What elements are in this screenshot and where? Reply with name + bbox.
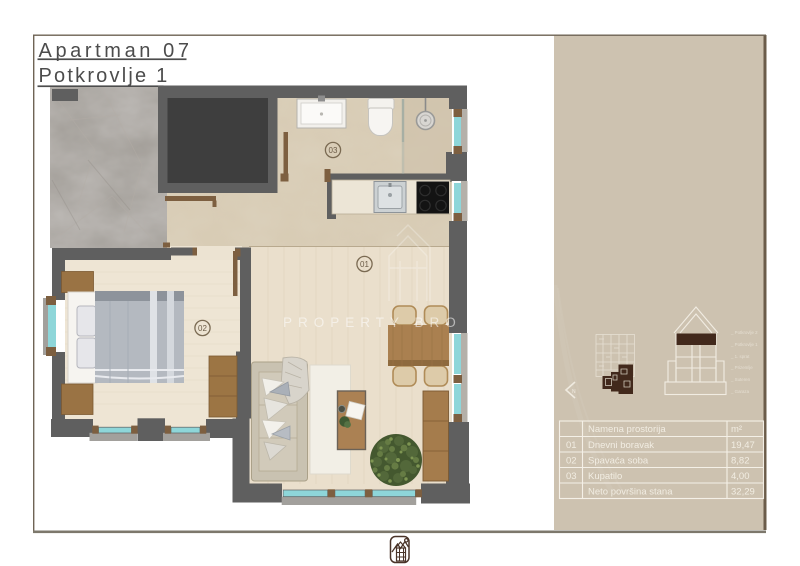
svg-text:_ 1. sprat: _ 1. sprat	[730, 354, 750, 359]
svg-text:Neto površina stana: Neto površina stana	[588, 487, 673, 498]
svg-text:02: 02	[198, 324, 207, 333]
svg-text:01: 01	[566, 440, 577, 451]
svg-text:Spavaća soba: Spavaća soba	[588, 456, 649, 467]
svg-text:8,82: 8,82	[731, 456, 750, 467]
svg-text:03: 03	[566, 471, 577, 482]
svg-text:Kupatilo: Kupatilo	[588, 471, 622, 482]
svg-text:02: 02	[566, 456, 577, 467]
svg-text:N: N	[572, 389, 576, 395]
svg-text:32,29: 32,29	[731, 487, 755, 498]
svg-text:03: 03	[329, 146, 338, 155]
svg-text:_ Potkrovlje 1: _ Potkrovlje 1	[730, 342, 758, 347]
svg-text:01: 01	[360, 260, 369, 269]
svg-text:_ Potkrovlje 2: _ Potkrovlje 2	[730, 330, 758, 335]
svg-text:Potkrovlje 1: Potkrovlje 1	[39, 65, 170, 87]
svg-text:_ Suteren: _ Suteren	[730, 377, 751, 382]
svg-text:m²: m²	[731, 424, 742, 435]
svg-text:_ Prizemlje: _ Prizemlje	[730, 365, 753, 370]
svg-text:19,47: 19,47	[731, 440, 755, 451]
svg-text:Namena prostorija: Namena prostorija	[588, 424, 666, 435]
svg-text:Dnevni boravak: Dnevni boravak	[588, 440, 654, 451]
svg-text:_ Garaza: _ Garaza	[730, 389, 750, 394]
svg-text:PROPERTY BRO: PROPERTY BRO	[283, 315, 462, 330]
svg-text:4,00: 4,00	[731, 471, 750, 482]
